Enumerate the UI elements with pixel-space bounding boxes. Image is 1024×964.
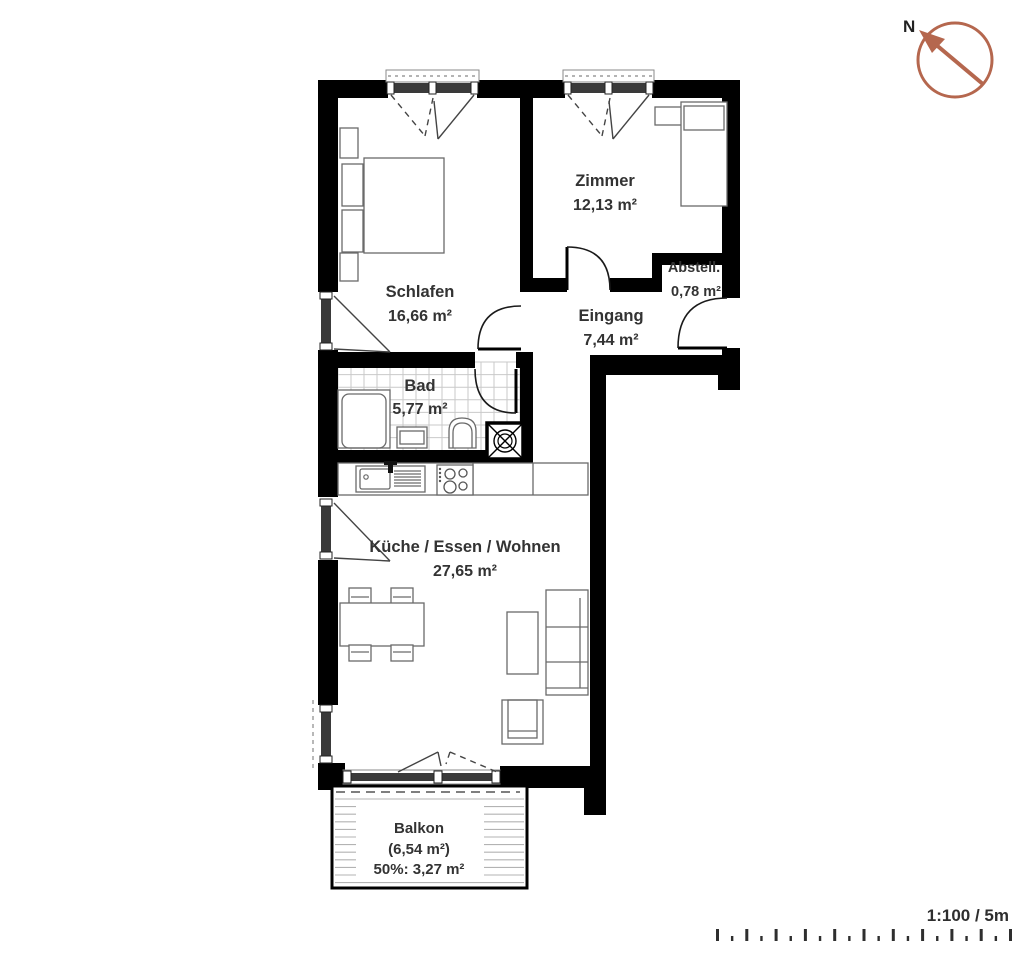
double-bed xyxy=(340,128,444,281)
north-arrow-line xyxy=(934,43,984,85)
window-schlafen-top xyxy=(386,70,479,139)
scale-label: 1:100 / 5m xyxy=(927,906,1009,925)
scale-bar: 1:100 / 5m xyxy=(716,906,1012,941)
north-label: N xyxy=(903,17,915,36)
room-label-eingang: Eingang xyxy=(578,307,643,325)
room-area-schlafen: 16,66 m² xyxy=(388,308,452,325)
room-area-kueche: 27,65 m² xyxy=(433,563,497,580)
room-area-eingang: 7,44 m² xyxy=(583,332,638,349)
stove xyxy=(437,465,473,495)
window-zimmer-top xyxy=(563,70,654,139)
room-label-kueche: Küche / Essen / Wohnen xyxy=(369,538,560,556)
sofa xyxy=(546,590,588,695)
scale-ticks xyxy=(716,929,1012,941)
washbasin xyxy=(397,427,427,448)
kitchen-sink xyxy=(356,461,425,492)
toilet xyxy=(449,418,476,448)
room-label-schlafen: Schlafen xyxy=(386,283,455,301)
window-wohnen-left xyxy=(313,700,332,768)
compass: N xyxy=(903,17,992,97)
door-schlafen xyxy=(478,306,521,349)
room-label-balkon: Balkon xyxy=(394,820,444,837)
floorplan-canvas: Zimmer 12,13 m² Schlafen 16,66 m² Abstel… xyxy=(0,0,1024,964)
door-entry xyxy=(678,298,727,348)
shower xyxy=(487,423,523,459)
room-area-balkon-half: 50%: 3,27 m² xyxy=(374,861,465,878)
room-label-abstell: Abstell. xyxy=(668,260,720,276)
room-label-zimmer: Zimmer xyxy=(575,172,635,190)
window-schlafen-left xyxy=(320,292,390,352)
bathtub xyxy=(338,390,390,448)
door-balcony xyxy=(343,752,500,784)
armchair xyxy=(502,700,543,744)
room-area-zimmer: 12,13 m² xyxy=(573,197,637,214)
room-area-abstell: 0,78 m² xyxy=(671,284,721,300)
room-label-bad: Bad xyxy=(404,377,435,395)
dining-set xyxy=(340,588,424,661)
single-bed xyxy=(655,102,727,206)
door-zimmer xyxy=(567,247,610,290)
coffee-table xyxy=(507,612,538,674)
room-area-balkon: (6,54 m²) xyxy=(388,841,450,858)
room-area-bad: 5,77 m² xyxy=(392,401,447,418)
